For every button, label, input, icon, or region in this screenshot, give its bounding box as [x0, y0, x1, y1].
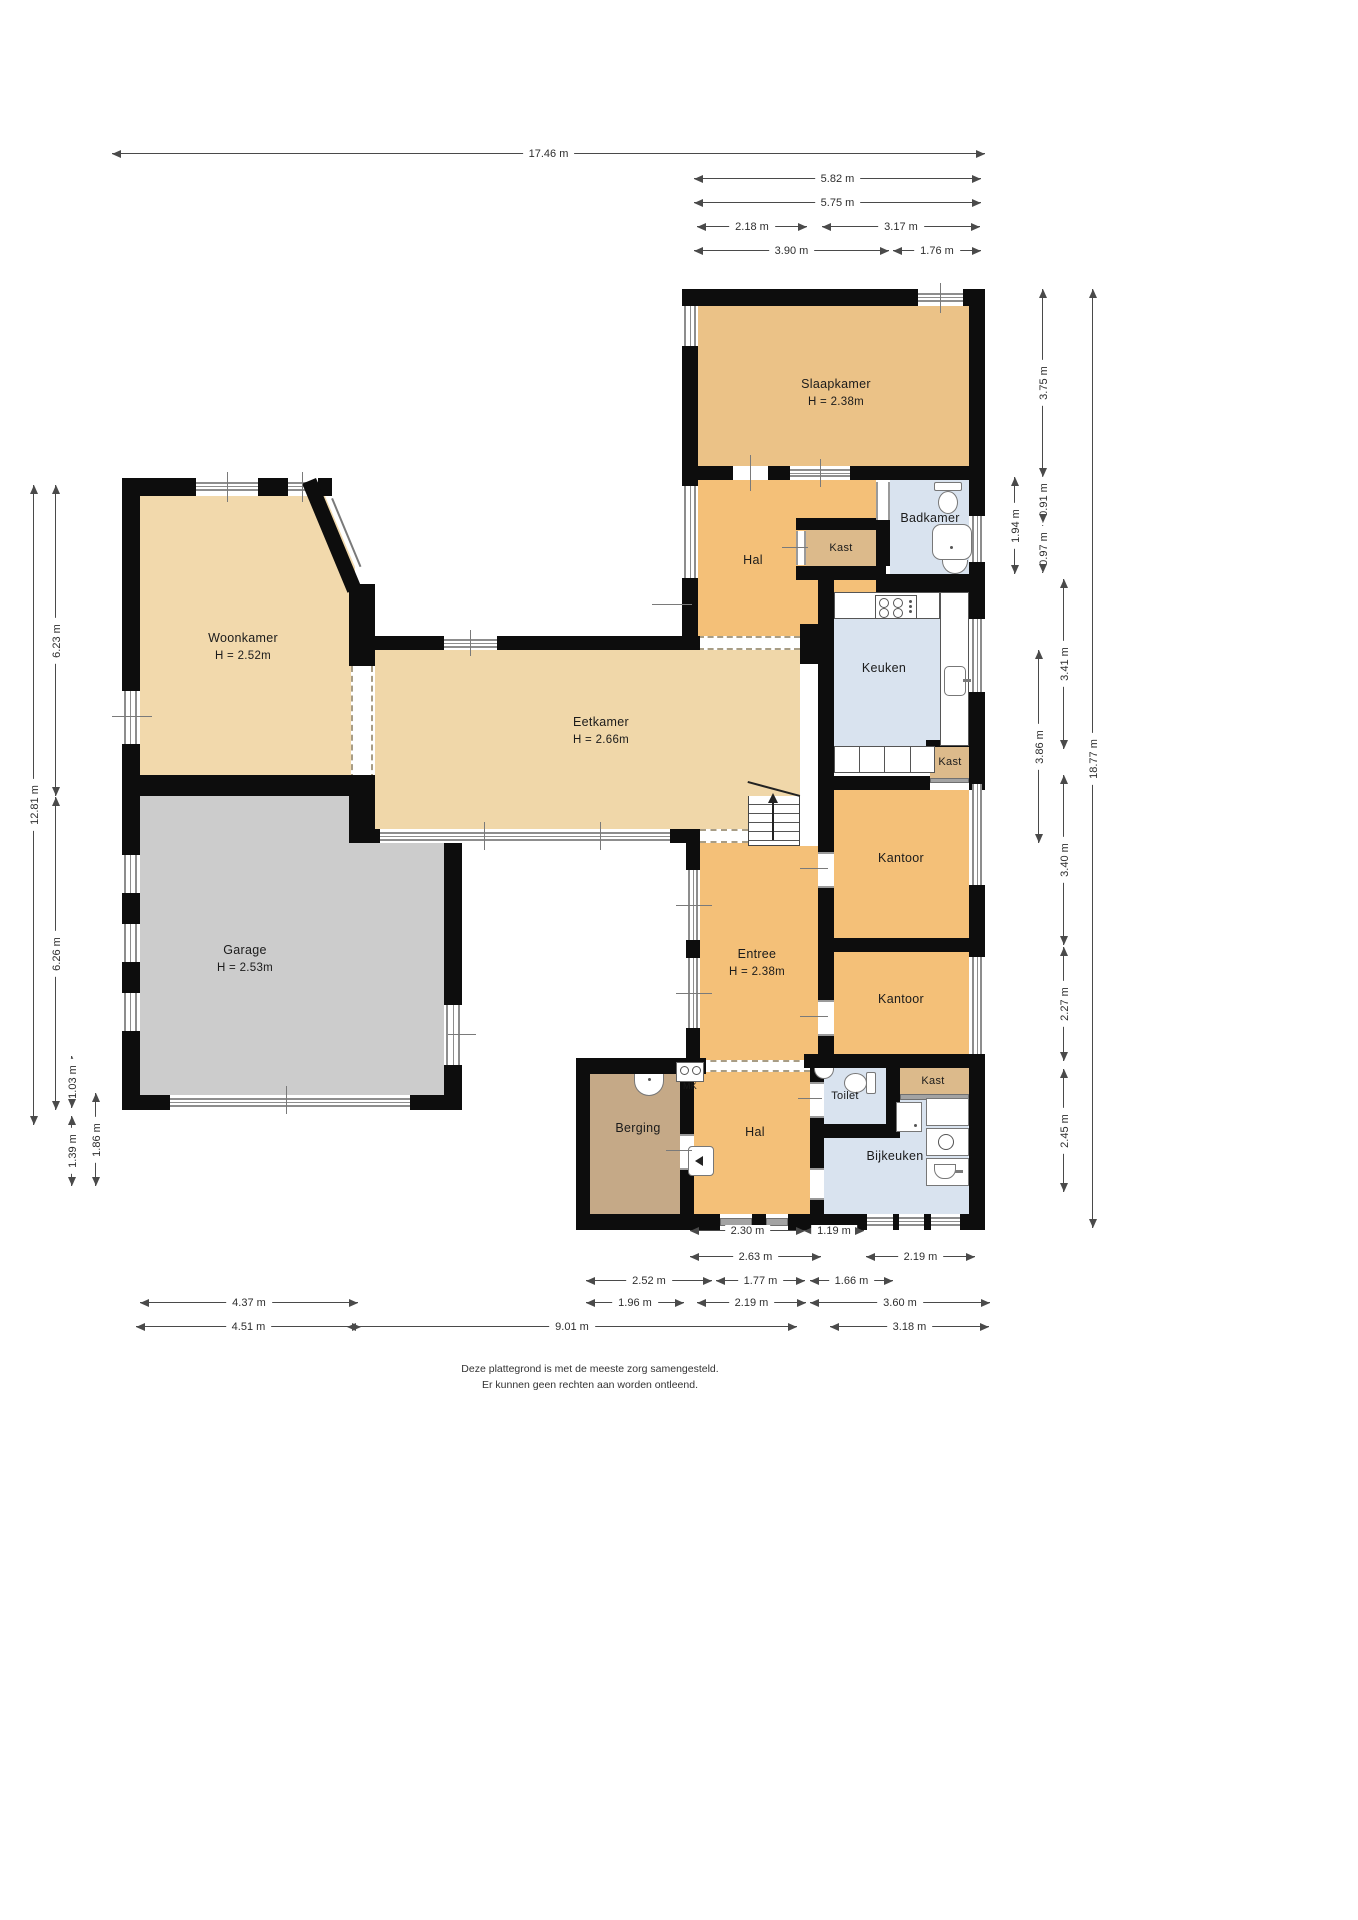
dimension-line: 2.18 m	[697, 226, 807, 227]
disclaimer-line-1: Deze plattegrond is met de meeste zorg s…	[300, 1362, 880, 1378]
door-swing-tick	[782, 547, 808, 548]
hob-controls-icon	[909, 600, 912, 603]
wall	[349, 584, 375, 666]
cabinet-divider	[884, 747, 885, 772]
wall	[810, 1200, 824, 1214]
wall	[818, 888, 834, 938]
window	[931, 1217, 960, 1226]
window-tick	[676, 905, 712, 906]
room-label-kast-onder: Kast	[921, 1075, 944, 1087]
wall	[686, 843, 700, 870]
passage	[800, 664, 818, 846]
window-tick	[940, 283, 941, 313]
wall	[969, 1056, 985, 1214]
window-tick	[470, 630, 471, 656]
window	[972, 784, 982, 885]
wall	[850, 466, 985, 480]
dimension-line: 1.76 m	[893, 250, 981, 251]
dimension-line: 1.77 m	[716, 1280, 805, 1281]
window-tick	[286, 1086, 287, 1114]
dimension-line: 1.94 m	[1014, 477, 1015, 574]
door-swing-tick	[820, 459, 821, 487]
room-label-berging: Berging	[615, 1121, 660, 1135]
dimension-line: 3.41 m	[1063, 579, 1064, 749]
room-label-garage: Garage	[223, 943, 267, 957]
faucet-icon	[955, 1170, 963, 1173]
dimension-line: 3.40 m	[1063, 775, 1064, 945]
dimension-line: 2.19 m	[697, 1302, 806, 1303]
dimension-line: 2.45 m	[1063, 1069, 1064, 1192]
wall	[680, 1170, 694, 1214]
dimension-line: 1.96 m	[586, 1302, 684, 1303]
room-label-badkamer: Badkamer	[900, 511, 959, 525]
wall	[122, 962, 140, 993]
stairs-icon	[748, 781, 800, 846]
wall	[258, 478, 288, 496]
room-floor-garage	[349, 843, 444, 1095]
door-opening	[810, 1168, 824, 1200]
shower-icon	[932, 524, 972, 560]
window	[684, 486, 696, 578]
room-label-hal-boven: Hal	[743, 553, 763, 567]
window	[124, 691, 137, 744]
wall	[576, 1072, 590, 1214]
toilet-icon	[866, 1072, 876, 1094]
wall	[969, 885, 985, 957]
washing-machine-door-icon	[938, 1134, 954, 1150]
room-label-kantoor-boven: Kantoor	[878, 851, 924, 865]
hob-burner-icon	[893, 598, 903, 608]
dimension-line: 6.26 m	[55, 797, 56, 1110]
wall	[682, 289, 918, 306]
door-swing-tick	[666, 1150, 692, 1151]
window	[972, 619, 982, 692]
window	[972, 957, 982, 1056]
wall	[362, 636, 444, 650]
wall	[818, 938, 985, 952]
room-label-kast-boven: Kast	[829, 542, 852, 554]
wall	[818, 576, 834, 776]
dashed-opening	[700, 829, 748, 843]
room-label-kantoor-onder: Kantoor	[878, 992, 924, 1006]
room-height-woonkamer: H = 2.52m	[215, 650, 271, 662]
hob-icon	[875, 595, 917, 619]
wall	[682, 578, 698, 638]
wall	[670, 829, 700, 843]
room-label-hal-beneden: Hal	[745, 1125, 765, 1139]
room-label-slaapkamer: Slaapkamer	[801, 377, 871, 391]
wall	[796, 566, 886, 580]
dimension-line: 1.03 m	[71, 1056, 72, 1108]
room-label-entree: Entree	[738, 947, 777, 961]
dashed-opening	[700, 1060, 810, 1072]
room-floor-hal-beneden	[694, 1072, 810, 1214]
wall	[122, 1095, 170, 1110]
toilet-icon	[934, 482, 962, 491]
wall	[682, 466, 733, 480]
dashed-opening	[698, 636, 800, 650]
window	[684, 306, 696, 346]
wall	[810, 1124, 900, 1138]
room-label-eetkamer: Eetkamer	[573, 715, 629, 729]
wall	[686, 940, 700, 958]
dimension-line: 3.90 m	[694, 250, 889, 251]
hob-burner-icon	[893, 608, 903, 618]
wall	[682, 346, 698, 480]
dimension-line: 17.46 m	[112, 153, 985, 154]
window	[124, 924, 137, 962]
dimension-line: 0.91 m	[1042, 477, 1043, 523]
meter-icon	[692, 1066, 701, 1075]
wall	[410, 1095, 462, 1110]
room-floor-berging	[590, 1074, 680, 1214]
room-label-bijkeuken: Bijkeuken	[867, 1149, 924, 1163]
room-height-slaapkamer: H = 2.38m	[808, 396, 864, 408]
room-label-kast-midden: Kast	[938, 756, 961, 768]
room-label-toilet: Toilet	[831, 1090, 858, 1102]
shower-drain-icon	[950, 546, 953, 549]
hob-burner-icon	[879, 608, 889, 618]
floor-plan-page: Slaapkamer H = 2.38m Hal Kast Badkamer K…	[0, 0, 1358, 1920]
window	[124, 855, 137, 893]
door-opening	[818, 1000, 834, 1036]
wall	[122, 478, 196, 496]
wall	[122, 893, 140, 924]
hob-burner-icon	[879, 598, 889, 608]
window	[867, 1217, 893, 1226]
dimension-line: 3.17 m	[822, 226, 980, 227]
window	[124, 993, 137, 1031]
wall	[818, 776, 930, 790]
boiler-flame-icon	[695, 1156, 703, 1166]
dimension-line: 6.23 m	[55, 485, 56, 796]
dimension-line: 2.19 m	[866, 1256, 975, 1257]
disclaimer-text: Deze plattegrond is met de meeste zorg s…	[300, 1362, 880, 1394]
window-tick	[676, 993, 712, 994]
dimension-line: 5.75 m	[694, 202, 981, 203]
disclaimer-line-2: Er kunnen geen rechten aan worden ontlee…	[300, 1378, 880, 1394]
faucet-icon	[963, 679, 971, 682]
wall	[963, 289, 985, 306]
stairs-direction-arrow-icon	[768, 793, 778, 803]
dryer-icon	[896, 1102, 922, 1132]
wall	[122, 744, 140, 855]
dimension-line: 3.75 m	[1042, 289, 1043, 477]
room-label-woonkamer: Woonkamer	[208, 631, 278, 645]
room-height-eetkamer: H = 2.66m	[573, 734, 629, 746]
dimension-line: 5.82 m	[694, 178, 981, 179]
room-label-keuken: Keuken	[862, 661, 906, 675]
wall	[768, 466, 790, 480]
door-opening	[876, 482, 890, 520]
window	[380, 832, 670, 841]
dimension-line: 4.51 m	[136, 1326, 361, 1327]
dimension-line: 2.52 m	[586, 1280, 712, 1281]
room-label-meterkast: MK	[683, 1081, 697, 1091]
dimension-line: 18.77 m	[1092, 289, 1093, 1228]
room-height-entree: H = 2.38m	[729, 966, 785, 978]
window-tick	[652, 604, 692, 605]
wall	[818, 790, 834, 852]
door-swing-tick	[750, 455, 751, 491]
wall	[497, 636, 700, 650]
wall	[969, 692, 985, 784]
stairs-steps	[748, 796, 800, 846]
dimension-line: 3.86 m	[1038, 650, 1039, 843]
wall	[969, 306, 985, 480]
wall	[804, 1054, 985, 1068]
wall	[818, 952, 834, 1000]
wall	[960, 1214, 985, 1230]
sliding-door	[930, 778, 969, 783]
wall	[876, 520, 890, 566]
dimension-line: 3.60 m	[810, 1302, 990, 1303]
dimension-line: 12.81 m	[33, 485, 34, 1125]
door-swing-tick	[800, 868, 828, 869]
window	[972, 516, 982, 562]
wall	[924, 1214, 931, 1230]
appliance-cell	[926, 1098, 969, 1126]
window-tick	[484, 822, 485, 850]
door-opening	[810, 1082, 824, 1118]
window-tick	[112, 716, 152, 717]
window	[899, 1217, 924, 1226]
door-swing-tick	[798, 1098, 822, 1099]
wall	[122, 496, 140, 691]
dimension-line: 1.86 m	[95, 1093, 96, 1186]
stairs-direction-arrow-icon	[772, 802, 774, 840]
wall	[796, 518, 886, 530]
room-height-garage: H = 2.53m	[217, 962, 273, 974]
cabinet-divider	[859, 747, 860, 772]
dryer-knob-icon	[914, 1124, 917, 1127]
dimension-line: 0.97 m	[1042, 525, 1043, 573]
dimension-line: 1.39 m	[71, 1116, 72, 1186]
door-opening	[796, 531, 806, 565]
dimension-line: 2.63 m	[690, 1256, 821, 1257]
wall	[122, 1031, 140, 1095]
dimension-line: 4.37 m	[140, 1302, 358, 1303]
dimension-line: 2.27 m	[1063, 947, 1064, 1061]
meter-icon	[680, 1066, 689, 1075]
dimension-line: 3.18 m	[830, 1326, 989, 1327]
window-tick	[227, 472, 228, 502]
wall	[800, 624, 818, 664]
dimension-line: 9.01 m	[347, 1326, 797, 1327]
dimension-line: 1.19 m	[804, 1230, 864, 1231]
wall	[969, 480, 985, 516]
window	[170, 1098, 410, 1107]
door-opening	[818, 852, 834, 888]
window-tick	[600, 822, 601, 850]
wall	[444, 843, 462, 1005]
dimension-line: 2.30 m	[690, 1230, 805, 1231]
window	[446, 1005, 460, 1065]
dashed-opening	[351, 666, 373, 780]
dimension-line: 1.66 m	[810, 1280, 893, 1281]
window-tick	[302, 472, 303, 502]
faucet-icon	[648, 1078, 651, 1081]
wall	[362, 829, 380, 843]
door-swing-tick	[800, 1016, 828, 1017]
cabinet-divider	[910, 747, 911, 772]
wall	[969, 562, 985, 619]
window-tick	[448, 1034, 476, 1035]
wall	[122, 775, 375, 796]
